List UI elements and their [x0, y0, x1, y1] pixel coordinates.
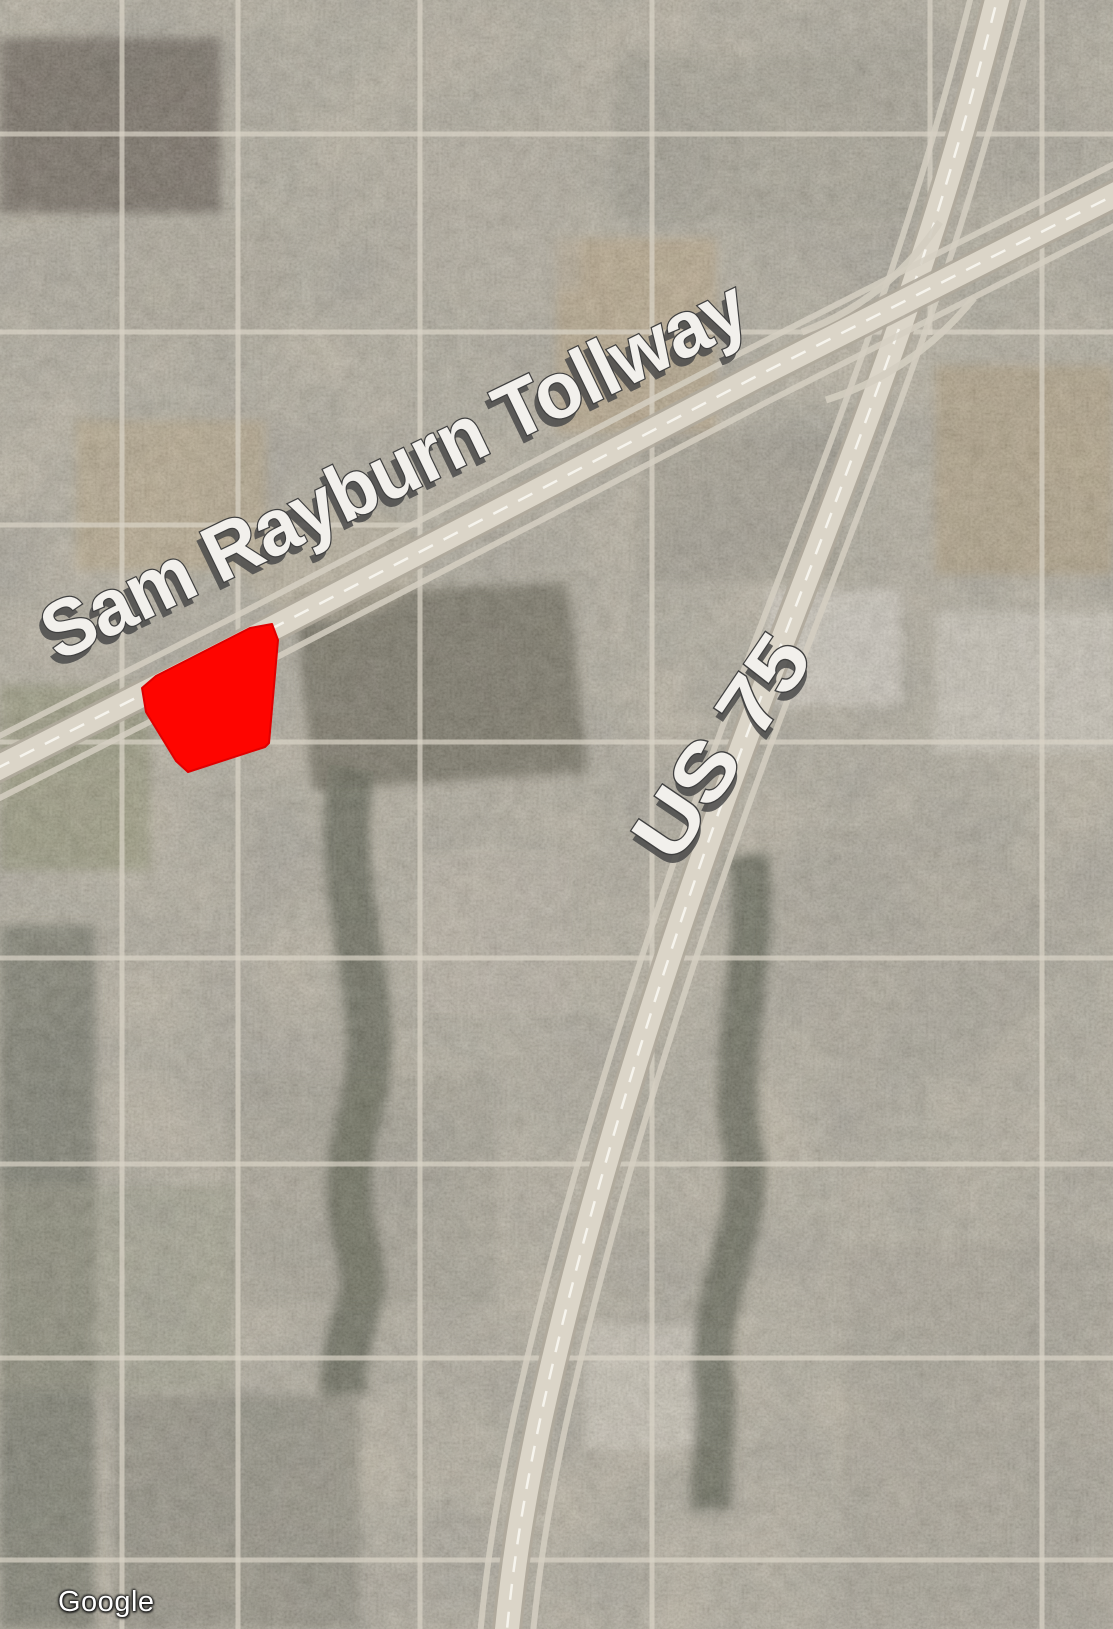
satellite-map-canvas[interactable]: Sam Rayburn Tollway Sam Rayburn Tollway …: [0, 0, 1113, 1629]
satellite-map: Sam Rayburn Tollway Sam Rayburn Tollway …: [0, 0, 1113, 1629]
google-watermark: Google: [58, 1586, 155, 1619]
